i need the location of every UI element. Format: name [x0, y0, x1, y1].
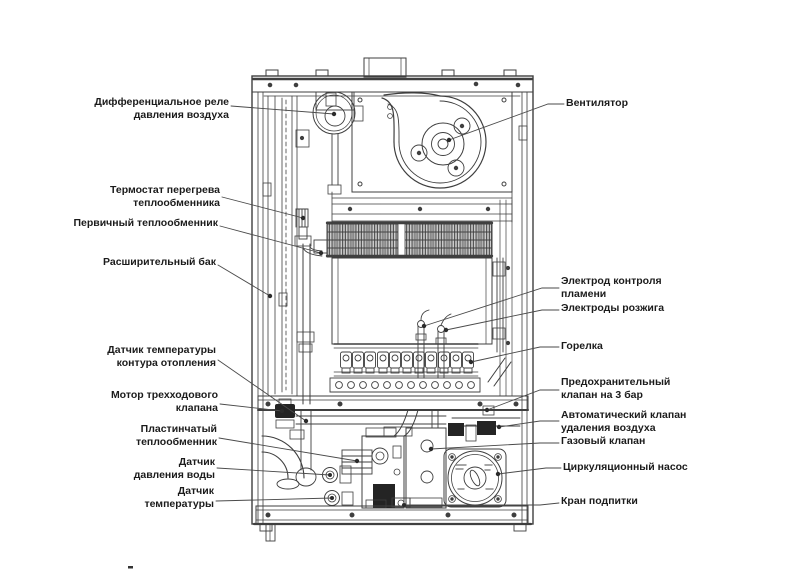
label-plate-heat-exchanger: Пластинчатый теплообменник [136, 423, 217, 449]
label-auto-air-vent: Автоматический клапан удаления воздуха [561, 409, 686, 435]
primary-heat-exchanger [314, 222, 492, 257]
label-expansion-tank: Расширительный бак [103, 256, 216, 269]
flue-collar [364, 58, 406, 77]
boiler-casing [252, 58, 533, 524]
three-way-valve-motor [275, 399, 304, 439]
burner-injectors [341, 352, 474, 373]
air-pressure-switch [313, 92, 363, 194]
label-air-pressure-switch: Дифференциальное реле давления воздуха [94, 96, 229, 122]
fan-volute [382, 93, 486, 188]
label-overheat-thermostat: Термостат перегрева теплообменника [110, 184, 220, 210]
boiler-line-drawing [0, 0, 786, 587]
label-make-up-tap: Кран подпитки [561, 495, 638, 508]
label-fan: Вентилятор [566, 97, 628, 110]
label-primary-heat-exchanger: Первичный теплообменник [73, 217, 218, 230]
label-water-pressure-sensor: Датчик давления воды [134, 456, 215, 482]
overheat-thermostat [296, 209, 308, 239]
label-circulation-pump: Циркуляционный насос [563, 461, 688, 474]
bottom-pipe-stub [266, 524, 275, 541]
hydraulic-group [262, 399, 520, 508]
circulation-pump [444, 449, 506, 507]
label-gas-valve: Газовый клапан [561, 435, 645, 448]
fan-assembly [352, 92, 512, 192]
expansion-tank-panel [263, 96, 309, 394]
label-temperature-sensor: Датчик температуры [144, 485, 214, 511]
bottom-panel [128, 506, 531, 569]
auto-air-vent [477, 421, 496, 435]
label-ignition-electrodes: Электроды розжига [561, 302, 664, 315]
label-burner: Горелка [561, 340, 603, 353]
flue-hood-band [332, 192, 512, 222]
label-three-way-valve-motor: Мотор трехходового клапана [111, 389, 218, 415]
fan-hub [411, 118, 470, 176]
label-flame-control-electrode: Электрод контроля пламени [561, 275, 662, 301]
diagram-canvas: Дифференциальное реле давления воздуха Т… [0, 0, 786, 587]
burner [330, 344, 480, 392]
page-mark [128, 566, 133, 569]
label-safety-valve: Предохранительный клапан на 3 бар [561, 376, 670, 402]
label-heating-temp-sensor: Датчик температуры контура отопления [107, 344, 216, 370]
hydraulic-block [406, 428, 446, 508]
burner-base-strip [330, 378, 480, 392]
